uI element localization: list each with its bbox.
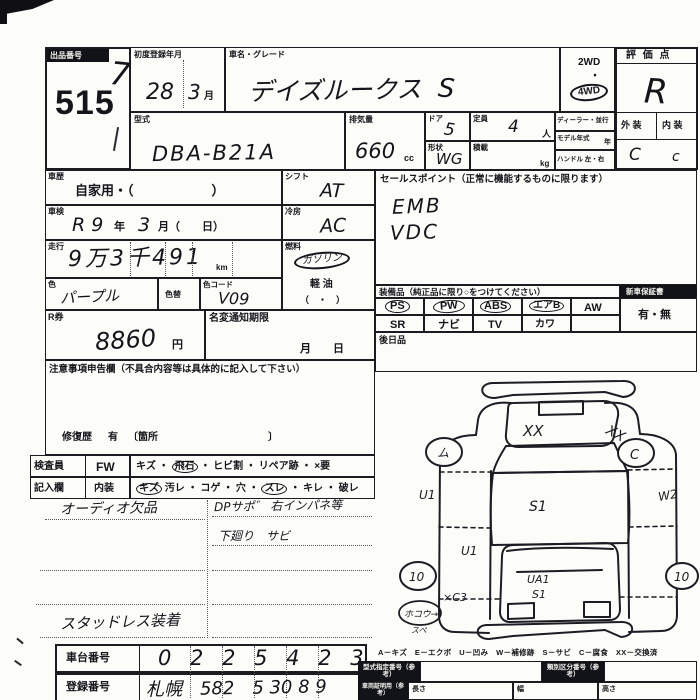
capacity-value: 4: [508, 119, 519, 136]
rule-line: [36, 604, 205, 605]
wheel-fl-mark: ム: [437, 446, 449, 460]
note-circle-text: ホコウ→: [404, 609, 439, 620]
rticket-value: 8860: [94, 326, 157, 354]
load-label: 積載: [473, 144, 488, 152]
fw-item-repair: リペア跡: [259, 461, 299, 472]
int-item-koge: コゲ: [200, 483, 220, 494]
equip-tv: TV: [488, 320, 502, 331]
notes-header: 注意事項申告欄（不具合内容等は具体的に記入して下さい）: [49, 365, 305, 375]
repair-value: 有: [108, 433, 118, 443]
windshield: [493, 443, 627, 473]
shaken-label: 車検: [48, 208, 64, 216]
scan-corner-artifact: [0, 0, 54, 15]
equip-kawa: カワ: [535, 320, 555, 330]
rear-left-mark: U1: [461, 544, 477, 558]
hatch-outline: [500, 543, 620, 622]
sales-header: セールスポイント（正常に機能するものに限ります）: [380, 175, 608, 185]
rear-window-line2: [517, 570, 602, 572]
mileage-div3: [192, 242, 193, 276]
equip-cell-blank: [571, 315, 620, 332]
inspector-key2: 記入欄: [34, 484, 64, 494]
equip-airbag: エアB: [529, 300, 564, 312]
drive-2wd: 2WD: [578, 58, 600, 68]
equip-abs: ABS: [480, 300, 511, 313]
shaken-u1: 年: [114, 222, 125, 233]
right-inner: [628, 470, 629, 618]
rule-line: [212, 545, 372, 546]
front-bumper: [482, 381, 635, 398]
equip-pw: PW: [433, 300, 465, 313]
drive-dot: ・: [590, 72, 600, 82]
corner-mark: ×C3: [443, 591, 467, 604]
score-label: 評 価 点: [626, 51, 672, 61]
sep: ・: [200, 461, 210, 472]
rule-line: [212, 637, 372, 638]
shaken-u2: 月（ 日）: [158, 222, 224, 233]
score-value: R: [643, 74, 668, 109]
wheel-rl-mark: 10: [409, 570, 425, 584]
int-value: c: [672, 150, 680, 164]
cool-value: AC: [320, 217, 347, 237]
sep: ・: [301, 461, 311, 472]
drive-4wd: 4WD: [570, 84, 608, 101]
fuel-label: 燃料: [285, 243, 301, 251]
grade-value: S: [437, 75, 455, 102]
color-code-value: V09: [218, 290, 250, 307]
rule-line: [212, 516, 372, 517]
tail-light-left: [508, 603, 534, 619]
model-label: 型式: [134, 116, 150, 124]
sep: ・: [188, 483, 198, 494]
auction-sheet: 出品番号 515 7 初度登録年月 28 3 月 車名・グレード デイズルークス…: [0, 0, 700, 700]
rule-line: [212, 570, 372, 571]
rule-line: [212, 604, 372, 605]
spec-height-label: 高さ: [602, 686, 616, 693]
month-unit: 月: [204, 92, 214, 102]
disp-unit: cc: [404, 154, 414, 163]
equip-ps-label: PS: [385, 300, 410, 313]
int-item-kizu: キズ: [136, 483, 162, 495]
rear-window-line1: [507, 548, 613, 551]
warranty-value: 有・無: [638, 310, 671, 321]
equip-sr: SR: [390, 320, 405, 331]
shift-value: AT: [320, 182, 344, 202]
sep: ・: [290, 483, 300, 494]
color-value: パープル: [60, 288, 120, 306]
warranty-header: 新車保証書: [620, 285, 697, 298]
rticket-unit: 円: [172, 340, 183, 351]
chassis-label: 車台番号: [66, 653, 110, 664]
chassis-div: [190, 646, 191, 698]
note-below-text: スペ: [411, 626, 427, 635]
spec-t2-value: [604, 661, 697, 682]
chassis-div: [222, 646, 223, 698]
mileage-value: 9万3千491: [68, 247, 203, 271]
wheel-fr-mark: C: [630, 448, 640, 463]
roof-mark: S1: [529, 499, 547, 515]
damage-legend: A－キズ E－エクボ U－凹み W－補修跡 S－サビ C－腐食 XX－交換済: [378, 649, 658, 657]
chassis-div: [318, 646, 319, 698]
equip-abs-label: ABS: [480, 300, 511, 313]
history-label: 車歴: [48, 173, 64, 181]
fuel-gasoline-circle: ガソリン: [293, 250, 350, 272]
inspector-sub1: FW: [96, 461, 115, 473]
int-item-yabure: 破レ: [339, 483, 359, 494]
scan-edge-artifact: [0, 0, 7, 24]
int-item-ana: 穴: [236, 483, 246, 494]
fw-items: キズ ・ 飛石 ・ ヒビ割 ・ リペア跡 ・ ×要: [136, 461, 330, 473]
seam-dash: [439, 469, 677, 599]
sep: ・: [249, 483, 259, 494]
shaken-v2: 3: [138, 216, 150, 235]
note-dp: DPサポ゛ 右インパネ等: [214, 499, 342, 513]
mileage-label: 走行: [48, 243, 64, 251]
spec-t1-value: [420, 661, 542, 682]
lot-number: 515: [55, 86, 115, 120]
sep: ・: [159, 461, 169, 472]
spec-width-cell: [513, 682, 598, 700]
equip-pw-label: PW: [433, 299, 466, 314]
equip-aw: AW: [584, 303, 602, 314]
lot-label: 出品番号: [47, 49, 109, 62]
sales-line1: EMB: [392, 195, 442, 217]
int-item-sure: スレ: [261, 483, 287, 495]
spec-t2-label: 類別区分番号（参考）: [542, 661, 604, 682]
rear-bumper: [478, 622, 632, 639]
namechg-label: 名変通知期限: [209, 314, 269, 324]
car-name-value: デイズルークス: [248, 76, 422, 104]
after-parts-cell: [375, 332, 697, 372]
sep: ・: [246, 461, 256, 472]
load-unit: kg: [540, 160, 549, 168]
spec-t1-label: 型式指定番号（参考）: [358, 661, 420, 682]
model-year-unit: 年: [604, 139, 611, 146]
first-reg-month: 3: [188, 82, 201, 102]
namechg-unit: 月 日: [300, 344, 344, 355]
capacity-unit: 人: [542, 130, 551, 139]
rule-line: [45, 519, 205, 520]
equip-ps: PS: [385, 300, 410, 313]
hatch-mark-1: UA1: [527, 573, 550, 586]
first-reg-label: 初度登録年月: [134, 51, 182, 59]
cool-label: 冷房: [285, 208, 301, 216]
rule-divider: [207, 500, 208, 638]
capacity-label: 定員: [473, 115, 488, 123]
int-label: 内 装: [662, 121, 683, 130]
spec-t3-label: 車両証明用（参考）: [358, 682, 408, 700]
rule-line: [40, 570, 205, 571]
disp-value: 660: [355, 141, 395, 162]
color-code-label: 色コード: [203, 281, 233, 289]
reg-value: 札幌 582 5 30 8 9: [146, 678, 327, 699]
scan-mark: [16, 638, 23, 645]
door-label: ドア: [428, 115, 443, 123]
fw-item-need: ×要: [314, 461, 330, 472]
int-item-yogore: 汚レ: [165, 483, 185, 494]
note-audio: オーディオ欠品: [60, 501, 157, 517]
spec-length-label: 長さ: [412, 686, 426, 693]
dealer-label: ディーラー・並行: [557, 118, 609, 125]
repair-loc: 〔箇所 〕: [128, 433, 278, 443]
door-left-mark: U1: [419, 488, 435, 502]
note-underside: 下廻り サビ: [218, 530, 290, 542]
rticket-label: R券: [48, 313, 64, 322]
mileage-unit: km: [216, 264, 228, 272]
color-chg-label: 色替: [165, 291, 181, 299]
left-inner: [490, 471, 491, 619]
repair-label: 修復歴: [62, 433, 92, 443]
mileage-div4: [232, 242, 233, 276]
sep: ・: [223, 483, 233, 494]
equip-header: 装備品（純正品に限り○をつけてください）: [379, 288, 545, 297]
sep: ・: [326, 483, 336, 494]
ext-label: 外 装: [621, 121, 642, 130]
fuel-gasoline: ガソリン: [294, 252, 350, 269]
inspector-key1: 検査員: [34, 462, 64, 472]
cabin-outline: [491, 471, 630, 545]
inspector-sub2: 内装: [94, 484, 114, 494]
equip-navi: ナビ: [438, 320, 460, 331]
after-parts-label: 後日品: [379, 336, 406, 345]
mileage-div2: [165, 242, 166, 276]
first-reg-year: 28: [146, 82, 174, 104]
history-value: 自家用・（ ）: [75, 184, 225, 197]
rule-line: [40, 637, 205, 638]
fw-item-tobishi: 飛石: [172, 461, 198, 473]
color-label: 色: [48, 281, 56, 289]
hood-mark: XX: [522, 422, 544, 440]
note-studless: スタッドレス装着: [60, 613, 180, 632]
car-diagram: XX XX S1 U1 W2 U1 ×C3 UA1 S1 ム C 10 10 ホ…: [377, 371, 699, 644]
chassis-div: [286, 646, 287, 698]
shaken-v1: R 9: [72, 216, 103, 235]
wheel-rr-mark: 10: [674, 570, 690, 584]
model-value: DBA-B21A: [152, 142, 276, 165]
scan-mark: [14, 660, 22, 666]
hatch-mark-2: S1: [532, 588, 546, 601]
sales-line2: VDC: [390, 221, 440, 243]
fw-item-hibi: ヒビ割: [213, 461, 243, 472]
month-divider: [183, 60, 184, 108]
fuel-other: （ ・ ）: [300, 296, 345, 305]
chassis-div: [254, 646, 255, 698]
disp-label: 排気量: [349, 116, 373, 124]
fuel-diesel: 軽 油: [310, 280, 333, 290]
shape-value: WG: [436, 152, 462, 167]
shift-label: シフト: [285, 173, 309, 181]
mileage-div1: [130, 242, 131, 276]
model-year-label: モデル年式: [557, 136, 590, 143]
car-name-label: 車名・グレード: [229, 51, 285, 59]
lot-hw-mark: 7: [108, 57, 132, 91]
fw-item-kizu: キズ: [136, 461, 156, 472]
ext-value: C: [629, 147, 641, 164]
equip-airbag-label: エアB: [529, 300, 564, 312]
reg-label: 登録番号: [66, 682, 110, 693]
int-items: キズ 汚レ ・ コゲ ・ 穴 ・ スレ ・ キレ ・ 破レ: [136, 483, 359, 495]
handle-label: ハンドル 左・右: [557, 157, 604, 164]
int-item-kire: キレ: [303, 483, 323, 494]
spec-width-label: 幅: [517, 686, 524, 693]
drive-4wd-circle: 4WD: [569, 82, 609, 103]
tail-light-right: [584, 602, 610, 617]
